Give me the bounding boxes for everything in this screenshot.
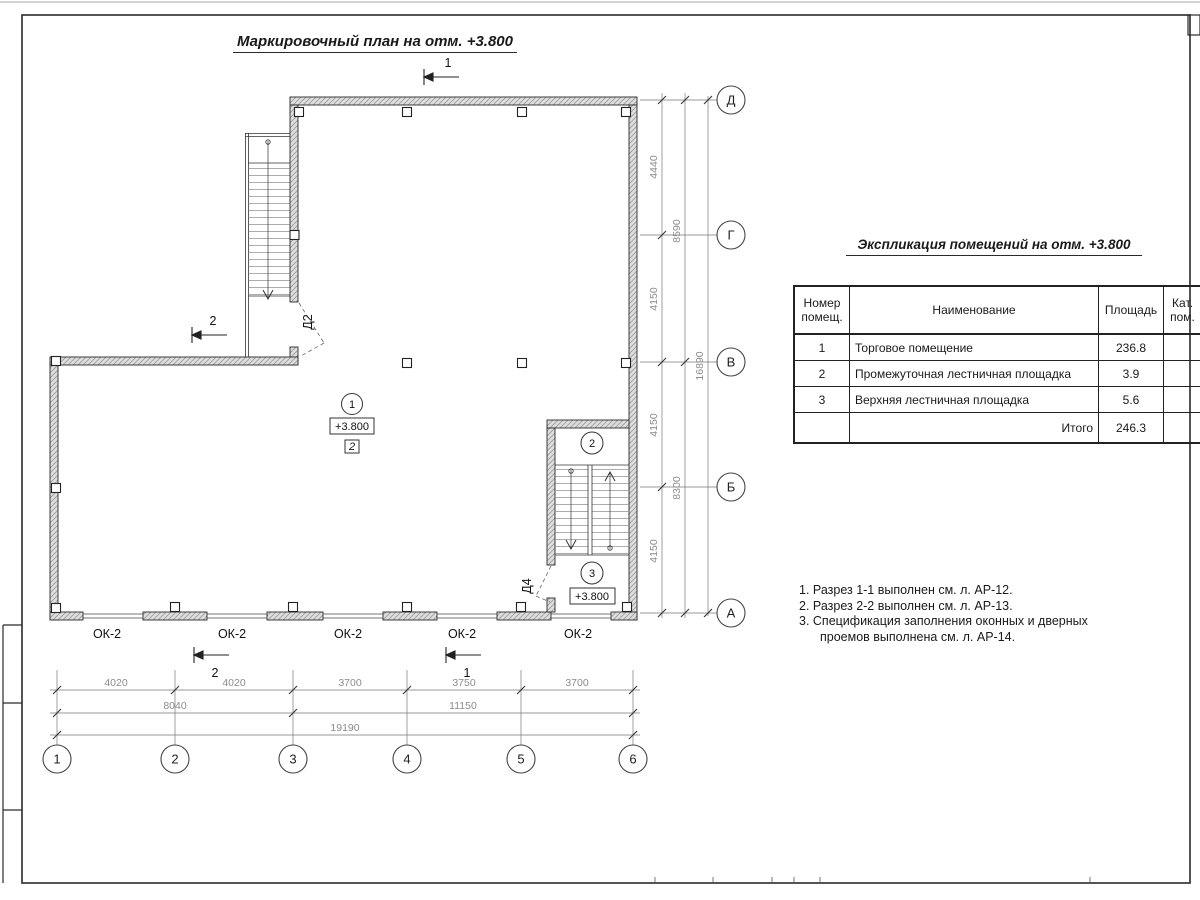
upper-stair	[245, 133, 290, 357]
total-row: Итого 246.3	[794, 413, 1200, 444]
dimension-label: 3750	[452, 677, 476, 689]
axis-bubble-label: Б	[727, 480, 736, 495]
room-1-category: 2	[348, 441, 355, 453]
note-line: 1. Разрез 1-1 выполнен см. л. АР-12.	[799, 583, 1088, 599]
cell-name: Промежуточная лестничная площадка	[850, 361, 1099, 387]
dimension-label: 19190	[330, 722, 359, 734]
room-tag-2: 2	[581, 432, 603, 454]
room-1-elevation: +3.800	[335, 421, 369, 433]
room-tag-1: 1 +3.800 2	[330, 394, 374, 454]
dimension-label: 4150	[648, 287, 660, 311]
room-3-elevation: +3.800	[575, 591, 609, 603]
dimension-label: 16890	[694, 351, 706, 380]
axis-bubble-label: 4	[403, 752, 410, 767]
dimension-label: 8040	[163, 700, 187, 712]
dimension-label: 4150	[648, 413, 660, 437]
walls	[50, 97, 637, 620]
window-label: ОК-2	[448, 627, 476, 641]
dimension-label: 4150	[648, 539, 660, 563]
axis-bubble-label: 6	[629, 752, 636, 767]
dimension-label: 3700	[565, 677, 589, 689]
cell-area: 236.8	[1099, 334, 1164, 361]
notes: 1. Разрез 1-1 выполнен см. л. АР-12. 2. …	[799, 583, 1088, 645]
window-labels: ОК-2 ОК-2 ОК-2 ОК-2 ОК-2	[93, 627, 592, 641]
cell-number: 3	[794, 387, 850, 413]
dimension-label: 8590	[671, 219, 683, 243]
door-label-d4: Д4	[520, 578, 534, 593]
header-area: Площадь	[1099, 286, 1164, 334]
schedule-title: Экспликация помещений на отм. +3.800	[846, 237, 1142, 256]
dimension-label: 4440	[648, 155, 660, 179]
note-line: проемов выполнена см. л. АР-14.	[820, 630, 1088, 646]
axis-bubble-label: 3	[289, 752, 296, 767]
total-empty	[794, 413, 850, 444]
cell-area: 5.6	[1099, 387, 1164, 413]
axis-bubble-label: Д	[727, 93, 736, 108]
axis-bubble-label: 5	[517, 752, 524, 767]
floor-plan-drawing: Д2 Д4 1 +3.800 2 2 3 +3.800 ОК-2 ОК-2 ОК…	[0, 0, 1200, 900]
room-2-number: 2	[589, 438, 595, 450]
plan-title: Маркировочный план на отм. +3.800	[233, 33, 517, 53]
section-marks	[192, 69, 481, 663]
section-2-label-bottom: 2	[212, 666, 219, 680]
header-category: Кат. пом.	[1164, 286, 1200, 334]
dimension-label: 4020	[222, 677, 246, 689]
header-number: Номер помещ.	[794, 286, 850, 334]
table-row: 2 Промежуточная лестничная площадка 3.9	[794, 361, 1200, 387]
header-name: Наименование	[850, 286, 1099, 334]
dimension-label: 3700	[338, 677, 362, 689]
axis-bubble-label: 2	[171, 752, 178, 767]
note-line: 2. Разрез 2-2 выполнен см. л. АР-13.	[799, 599, 1088, 615]
room-3-number: 3	[589, 568, 595, 580]
room-schedule-table: Номер помещ. Наименование Площадь Кат. п…	[793, 285, 1200, 444]
schedule-header-row: Номер помещ. Наименование Площадь Кат. п…	[794, 286, 1200, 334]
table-row: 1 Торговое помещение 236.8	[794, 334, 1200, 361]
section-1-label-top: 1	[445, 56, 452, 70]
total-category-empty	[1164, 413, 1200, 444]
door-d4	[536, 566, 551, 602]
drawing-sheet: Д2 Д4 1 +3.800 2 2 3 +3.800 ОК-2 ОК-2 ОК…	[0, 0, 1200, 900]
cell-name: Верхняя лестничная площадка	[850, 387, 1099, 413]
room-tag-3: 3 +3.800	[570, 562, 615, 604]
titleblock-ticks	[655, 877, 1090, 883]
horizontal-axis-labels: 1 2 3 4 5 6	[53, 752, 636, 767]
cell-area: 3.9	[1099, 361, 1164, 387]
dimension-label: 8300	[671, 476, 683, 500]
note-line: 3. Спецификация заполнения оконных и две…	[799, 614, 1088, 630]
window-label: ОК-2	[93, 627, 121, 641]
window-label: ОК-2	[564, 627, 592, 641]
section-2-label-top: 2	[210, 314, 217, 328]
dimension-label: 11150	[449, 700, 477, 712]
window-label: ОК-2	[218, 627, 246, 641]
cell-category	[1164, 334, 1200, 361]
right-dimensions: 4440 4150 4150 4150 8590 8300 16890	[640, 93, 717, 618]
cell-category	[1164, 387, 1200, 413]
vertical-axis-labels: Д Г В Б А	[727, 93, 736, 621]
axis-bubble-label: В	[727, 355, 736, 370]
window-label: ОК-2	[334, 627, 362, 641]
cell-category	[1164, 361, 1200, 387]
door-label-d2: Д2	[301, 314, 315, 329]
dimension-label: 4020	[104, 677, 128, 689]
room-1-number: 1	[349, 399, 355, 411]
total-value: 246.3	[1099, 413, 1164, 444]
horizontal-axis-bubbles	[43, 745, 647, 773]
cell-number: 1	[794, 334, 850, 361]
total-label: Итого	[850, 413, 1099, 444]
lower-stair	[555, 465, 629, 555]
axis-bubble-label: 1	[53, 752, 60, 767]
cell-name: Торговое помещение	[850, 334, 1099, 361]
bottom-dimensions: 4020 4020 3700 3750 3700 8040 11150 1919…	[50, 670, 640, 745]
axis-bubble-label: Г	[727, 228, 734, 243]
cell-number: 2	[794, 361, 850, 387]
table-row: 3 Верхняя лестничная площадка 5.6	[794, 387, 1200, 413]
axis-bubble-label: А	[727, 606, 736, 621]
